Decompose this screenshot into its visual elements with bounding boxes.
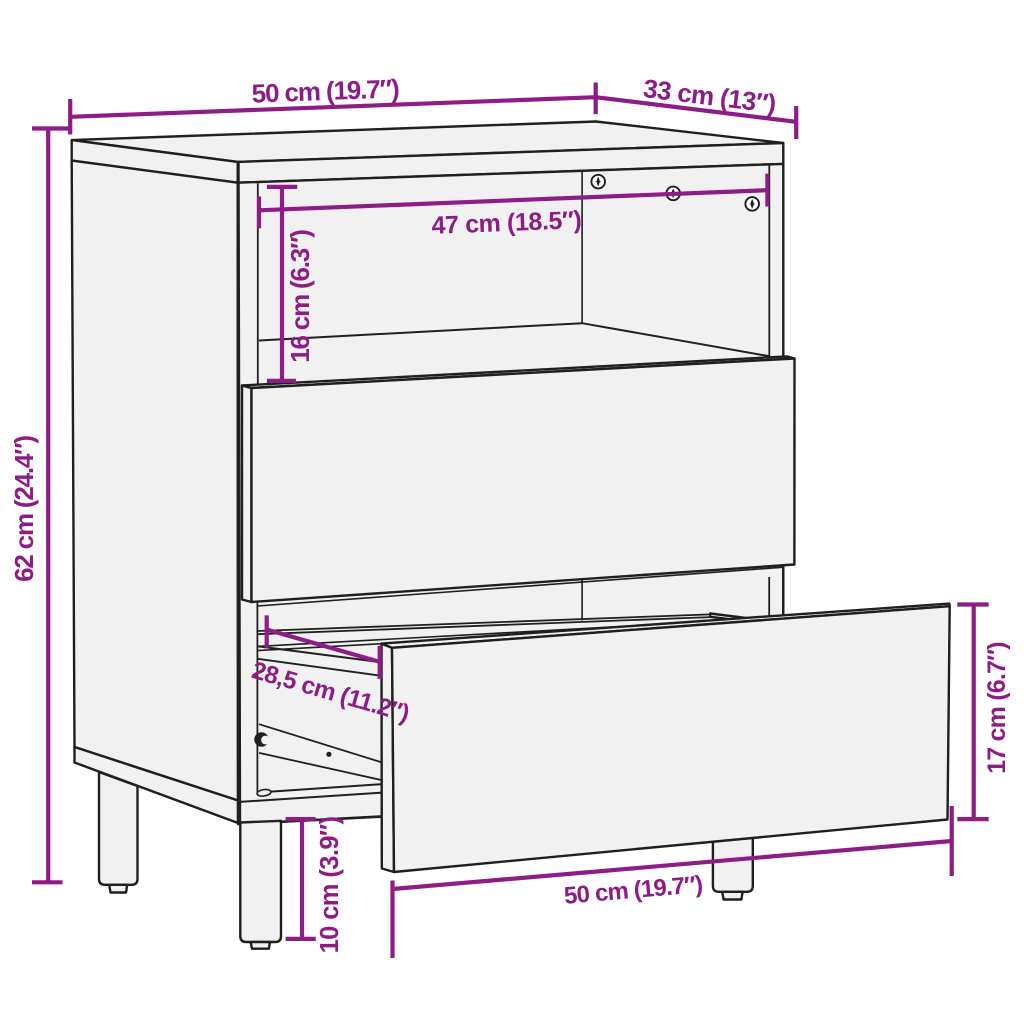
svg-text:47 cm (18.5″): 47 cm (18.5″) bbox=[431, 206, 582, 240]
svg-text:62 cm (24.4″): 62 cm (24.4″) bbox=[9, 436, 39, 582]
svg-text:10 cm (3.9″): 10 cm (3.9″) bbox=[316, 816, 344, 953]
svg-text:17 cm (6.7″): 17 cm (6.7″) bbox=[983, 642, 1011, 774]
svg-text:50 cm (19.7″): 50 cm (19.7″) bbox=[251, 73, 399, 108]
svg-text:16 cm (6.3″): 16 cm (6.3″) bbox=[285, 230, 315, 363]
